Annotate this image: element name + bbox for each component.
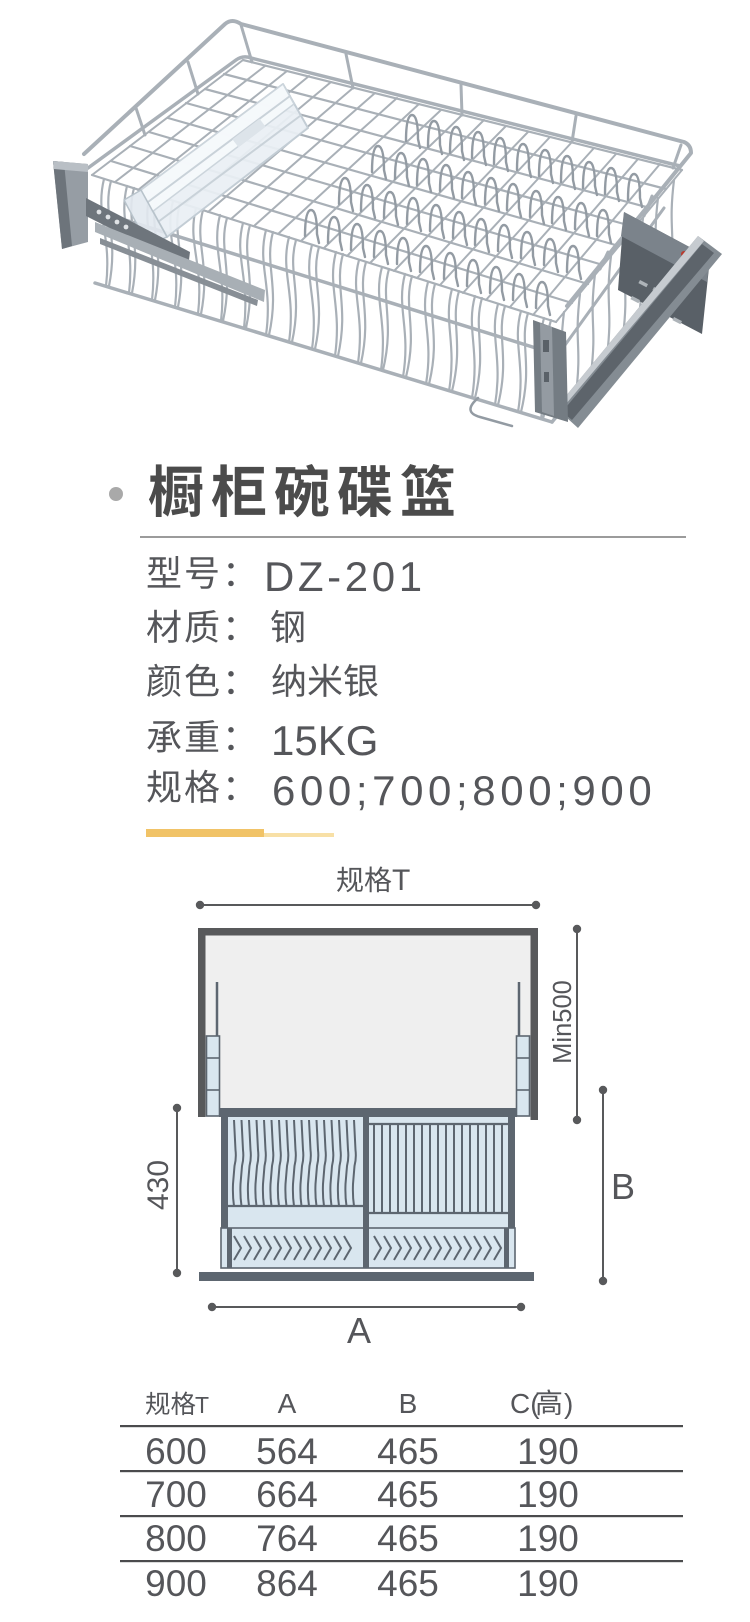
svg-text:Min500: Min500 <box>549 980 577 1064</box>
svg-text:600;700;800;900: 600;700;800;900 <box>272 767 656 814</box>
svg-text:864: 864 <box>256 1563 318 1604</box>
svg-text:T: T <box>195 1392 209 1418</box>
svg-text:190: 190 <box>517 1474 579 1515</box>
svg-text:): ) <box>564 1388 573 1419</box>
svg-text:465: 465 <box>377 1431 439 1472</box>
svg-text:T: T <box>392 864 410 897</box>
svg-text:B: B <box>399 1388 418 1419</box>
svg-text:190: 190 <box>517 1431 579 1472</box>
svg-text:600: 600 <box>145 1431 207 1472</box>
svg-text:664: 664 <box>256 1474 318 1515</box>
svg-text:A: A <box>347 1310 371 1351</box>
svg-text:DZ-201: DZ-201 <box>264 553 426 600</box>
svg-text:465: 465 <box>377 1474 439 1515</box>
svg-text:764: 764 <box>256 1518 318 1559</box>
svg-text:465: 465 <box>377 1563 439 1604</box>
svg-text:190: 190 <box>517 1563 579 1604</box>
svg-text:15KG: 15KG <box>271 717 378 764</box>
svg-text:564: 564 <box>256 1431 318 1472</box>
svg-text:430: 430 <box>142 1160 175 1210</box>
svg-text:800: 800 <box>145 1518 207 1559</box>
svg-text:190: 190 <box>517 1518 579 1559</box>
svg-text:A: A <box>278 1388 297 1419</box>
svg-text:700: 700 <box>145 1474 207 1515</box>
svg-text:465: 465 <box>377 1518 439 1559</box>
svg-text:B: B <box>611 1166 635 1207</box>
svg-text:C(: C( <box>510 1388 540 1419</box>
svg-text:900: 900 <box>145 1563 207 1604</box>
